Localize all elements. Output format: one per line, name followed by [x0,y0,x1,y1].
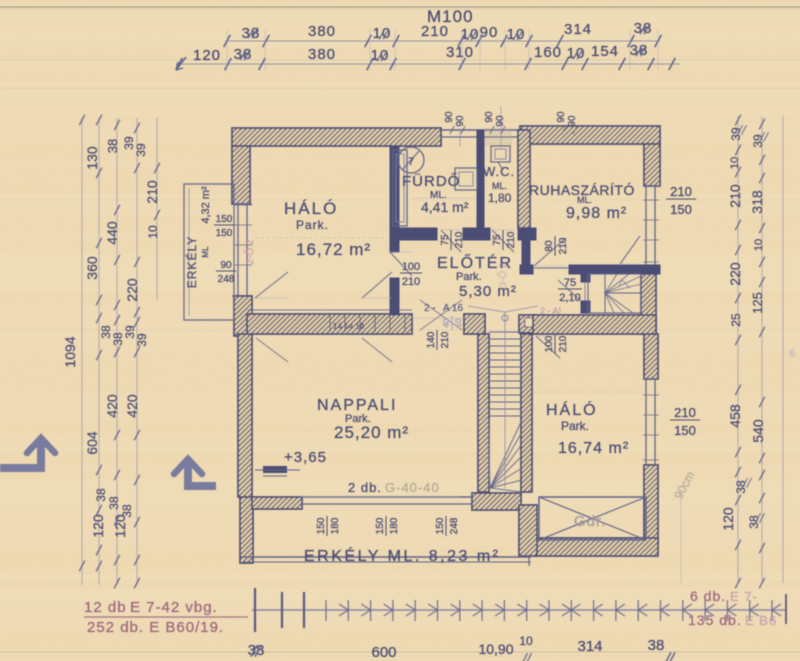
svg-text:2 -: 2 - [424,303,436,314]
svg-text:75: 75 [492,234,503,246]
svg-text:6: 6 [789,348,795,360]
svg-text:10: 10 [146,225,160,239]
svg-text:90: 90 [484,111,495,123]
svg-text:154: 154 [591,43,619,60]
svg-text:9,98 m²: 9,98 m² [566,205,627,222]
svg-text:210: 210 [440,331,451,348]
svg-text:Park.: Park. [456,271,482,283]
svg-text:90: 90 [444,111,455,123]
svg-text:604: 604 [84,431,100,455]
svg-text:135 db.: 135 db. [688,612,742,628]
svg-text:120: 120 [193,47,221,64]
svg-text:38: 38 [94,488,108,502]
svg-text:Gdr.: Gdr. [574,513,606,530]
svg-text:150: 150 [670,202,692,217]
svg-text:4,41 m²: 4,41 m² [421,199,469,215]
svg-text:6 db.: 6 db. [690,588,726,604]
svg-text:252 db. E B60/19.: 252 db. E B60/19. [87,619,224,636]
svg-text:210: 210 [558,237,569,254]
svg-text:210: 210 [670,184,692,199]
svg-text:100: 100 [544,335,555,352]
svg-text:120: 120 [90,514,106,538]
svg-text:458: 458 [727,404,743,428]
svg-text:210: 210 [454,231,465,248]
svg-text:25: 25 [729,313,743,327]
svg-text:2-Ő 2: 2-Ő 2 [242,239,256,264]
svg-text:2,10: 2,10 [559,292,580,304]
svg-text:360: 360 [84,256,100,280]
svg-text:90: 90 [480,24,499,41]
svg-text:90: 90 [220,260,232,271]
svg-text:600: 600 [371,644,396,661]
svg-text:1,80: 1,80 [488,191,512,205]
svg-text:10: 10 [454,318,463,327]
svg-text:10: 10 [729,157,741,169]
svg-text:90: 90 [495,115,506,127]
svg-text:2 db.: 2 db. [348,480,382,495]
svg-text:210: 210 [402,276,420,288]
svg-text:ML.: ML. [492,181,507,191]
svg-text:16,74 m²: 16,74 m² [558,440,629,457]
svg-text:40: 40 [442,318,451,327]
svg-text:38: 38 [105,139,120,153]
svg-text:38: 38 [648,637,665,654]
svg-text:150: 150 [216,228,233,239]
svg-text:220: 220 [727,262,743,286]
svg-text:248: 248 [218,274,235,285]
svg-text:180: 180 [330,517,341,534]
svg-text:3-Ő 2: 3-Ő 2 [495,262,509,287]
svg-text:318: 318 [749,190,765,214]
svg-text:25,20 m²: 25,20 m² [334,423,409,442]
svg-text:310: 310 [446,44,474,61]
svg-text:210: 210 [506,231,517,248]
svg-text:12 db: 12 db [84,599,127,616]
svg-text:E B6: E B6 [745,613,777,628]
svg-text:210: 210 [144,180,160,204]
svg-text:A 16: A 16 [443,303,463,314]
svg-text:125: 125 [750,292,765,314]
svg-text:420: 420 [124,394,140,418]
svg-text:440: 440 [104,221,120,245]
svg-text:16,72 m²: 16,72 m² [296,240,371,259]
svg-text:150: 150 [375,517,386,534]
svg-text:10,90: 10,90 [478,641,513,657]
svg-text:100: 100 [402,261,420,273]
svg-text:380: 380 [308,23,336,40]
svg-text:90: 90 [455,115,466,127]
svg-text:14 14 14: 14 14 14 [333,322,365,331]
svg-text:HÁLÓ: HÁLÓ [284,199,338,218]
svg-text:+3,65: +3,65 [284,449,327,466]
svg-text:90: 90 [567,115,578,127]
svg-text:210: 210 [421,23,449,40]
svg-text:210: 210 [558,335,569,352]
svg-text:75: 75 [564,277,576,289]
svg-text:150: 150 [435,517,446,534]
svg-text:150: 150 [216,214,233,225]
svg-text:NAPPALI: NAPPALI [317,397,397,414]
svg-text:E 7-42 vbg.: E 7-42 vbg. [130,599,218,616]
svg-text:Park.: Park. [561,419,589,433]
svg-text:220: 220 [124,278,140,302]
svg-text:1094: 1094 [62,336,78,367]
svg-text:150: 150 [316,517,327,534]
svg-text:2 - A!: 2 - A! [540,306,561,316]
svg-text:38: 38 [107,496,121,510]
svg-text:10: 10 [519,634,533,648]
svg-text:HÁLÓ: HÁLÓ [546,400,598,419]
svg-text:314: 314 [564,21,592,38]
svg-text:W.C.: W.C. [483,164,515,179]
svg-text:314: 314 [577,638,602,655]
svg-text:540: 540 [750,419,766,443]
svg-text:140: 140 [426,331,437,348]
svg-text:39: 39 [135,333,149,347]
svg-text:420: 420 [104,394,120,418]
svg-text:150: 150 [674,423,696,438]
svg-text:10: 10 [753,239,765,251]
svg-text:90: 90 [556,111,567,123]
svg-text:180: 180 [389,517,400,534]
svg-text:130: 130 [84,146,100,170]
svg-text:210: 210 [674,405,696,420]
svg-text:ML.: ML. [577,195,592,205]
svg-text:G-40-40: G-40-40 [385,480,440,495]
svg-text:39: 39 [134,143,148,157]
svg-text:ERKÉLY ML. 8,23 m²: ERKÉLY ML. 8,23 m² [304,546,500,565]
svg-text:248: 248 [449,517,460,534]
svg-text:210: 210 [727,184,743,208]
svg-text:4,32 m²: 4,32 m² [200,186,212,224]
svg-text:FÜRDŐ: FÜRDŐ [402,172,460,190]
svg-text:ERKÉLY: ERKÉLY [184,236,199,288]
svg-text:120: 120 [112,514,128,538]
svg-text:ML: ML [201,246,210,258]
svg-text:E 7-: E 7- [730,589,758,604]
svg-text:80: 80 [544,240,555,252]
svg-text:75: 75 [440,234,451,246]
svg-text:380: 380 [308,46,336,63]
svg-text:7: 7 [408,156,414,168]
svg-text:120: 120 [720,507,736,531]
svg-text:38: 38 [248,642,265,659]
svg-text:Park.: Park. [296,218,329,232]
